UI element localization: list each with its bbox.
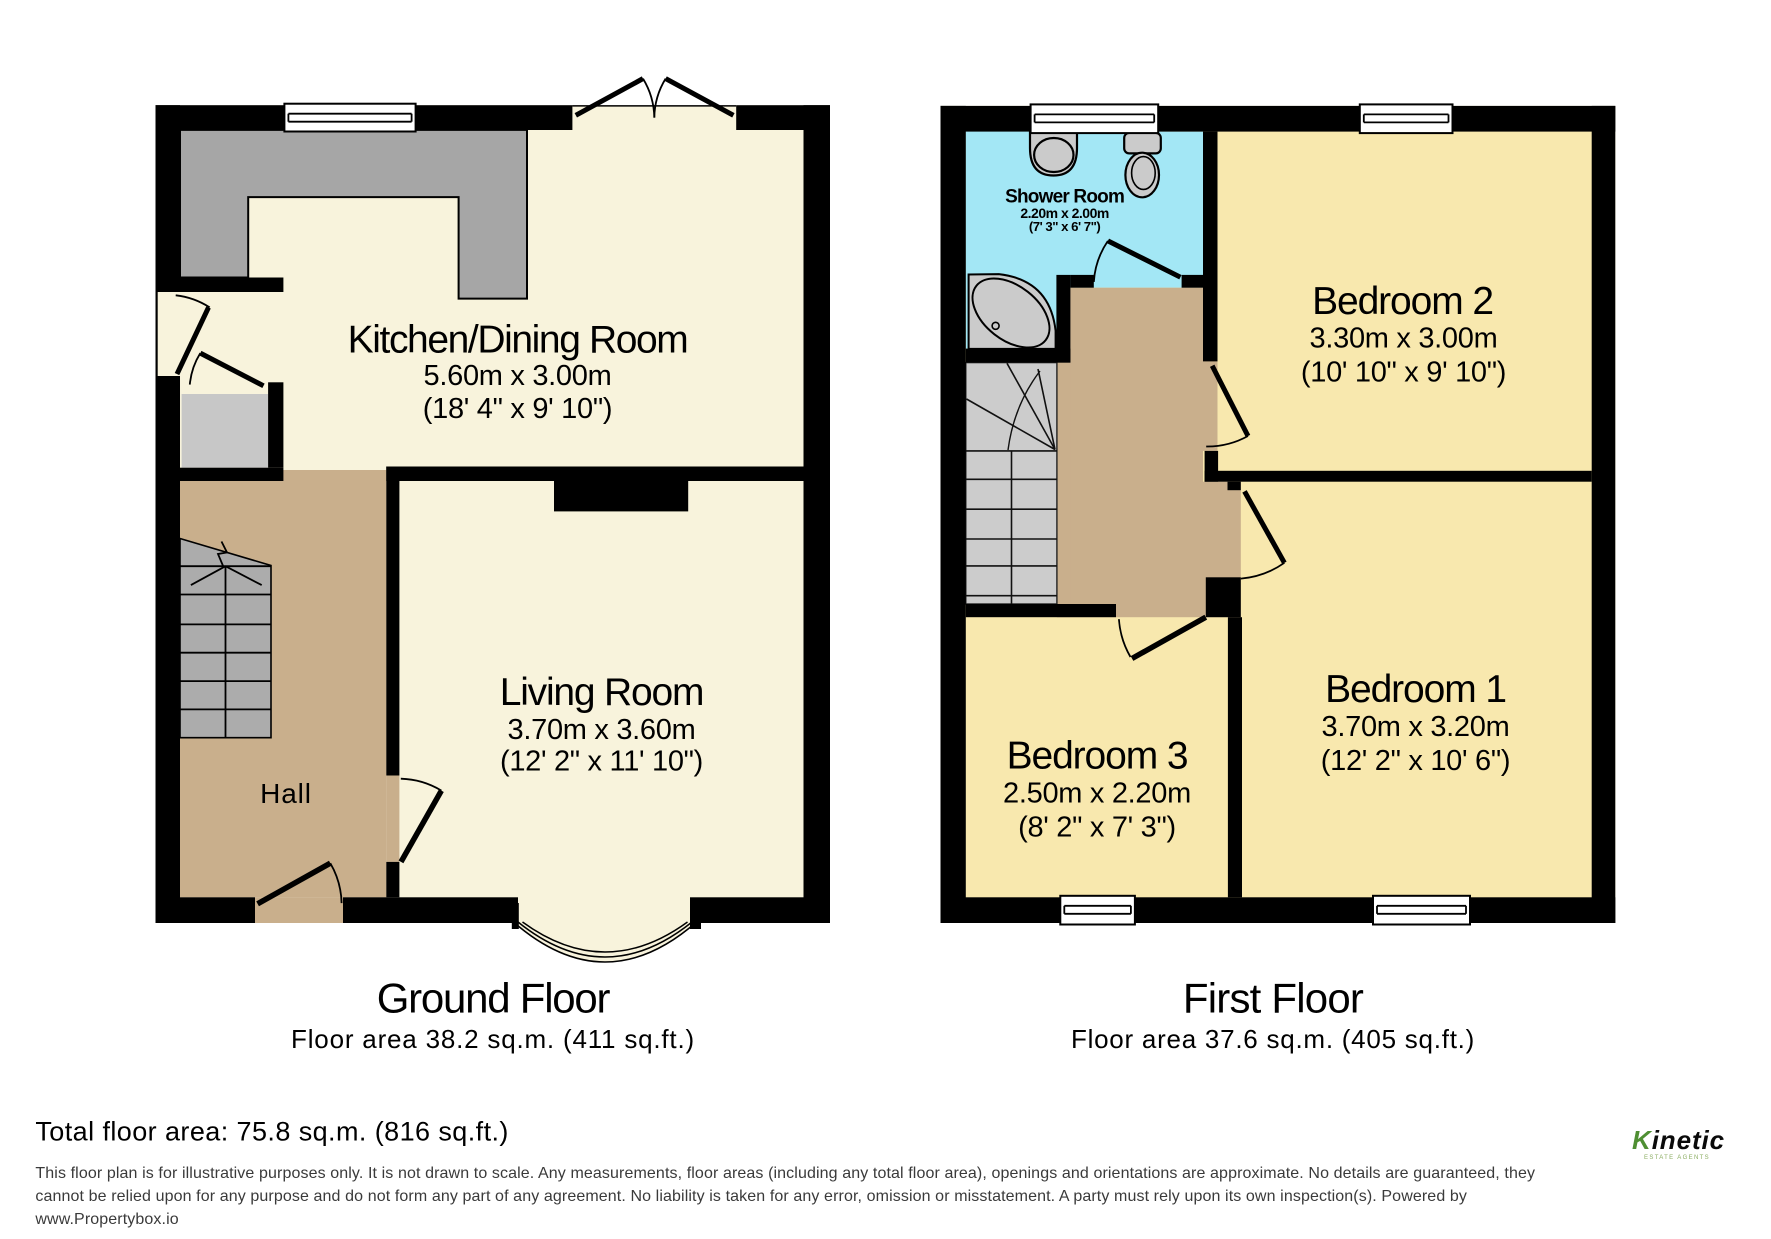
svg-text:First Floor: First Floor [1183,975,1364,1022]
svg-text:Floor area 38.2 sq.m. (411 sq.: Floor area 38.2 sq.m. (411 sq.ft.) [291,1024,695,1054]
svg-text:This floor plan is for illustr: This floor plan is for illustrative purp… [35,1165,1535,1182]
svg-text:Hall: Hall [260,778,312,809]
svg-text:cannot be relied upon for any: cannot be relied upon for any purpose an… [35,1188,1467,1205]
svg-text:Bedroom 3: Bedroom 3 [1007,735,1188,778]
svg-text:2.50m x 2.20m: 2.50m x 2.20m [1003,778,1191,810]
svg-text:(12' 2" x 10' 6"): (12' 2" x 10' 6") [1321,745,1510,777]
svg-text:(12' 2" x 11' 10"): (12' 2" x 11' 10") [500,746,703,778]
svg-text:3.70m x 3.20m: 3.70m x 3.20m [1322,711,1510,743]
svg-text:(7' 3" x 6' 7"): (7' 3" x 6' 7") [1029,219,1100,234]
svg-text:(18' 4" x 9' 10"): (18' 4" x 9' 10") [423,393,612,425]
svg-text:Kitchen/Dining Room: Kitchen/Dining Room [348,319,688,362]
svg-text:Kinetic: Kinetic [1632,1125,1725,1155]
svg-text:www.Propertybox.io: www.Propertybox.io [34,1211,178,1228]
svg-text:3.30m x 3.00m: 3.30m x 3.00m [1310,323,1498,355]
svg-text:Bedroom 2: Bedroom 2 [1312,280,1493,323]
svg-text:Total floor area: 75.8 sq.m. (: Total floor area: 75.8 sq.m. (816 sq.ft.… [35,1117,508,1147]
svg-text:Ground Floor: Ground Floor [377,975,611,1022]
svg-text:Living Room: Living Room [500,671,704,714]
svg-text:(8' 2" x 7' 3"): (8' 2" x 7' 3") [1018,812,1176,844]
svg-text:Bedroom 1: Bedroom 1 [1325,668,1506,711]
svg-text:3.70m x 3.60m: 3.70m x 3.60m [508,714,696,746]
svg-text:Floor area 37.6 sq.m. (405 sq.: Floor area 37.6 sq.m. (405 sq.ft.) [1071,1024,1475,1054]
svg-text:ESTATE AGENTS: ESTATE AGENTS [1644,1155,1710,1161]
svg-text:(10' 10" x 9' 10"): (10' 10" x 9' 10") [1301,357,1506,389]
svg-text:5.60m x 3.00m: 5.60m x 3.00m [424,360,612,392]
